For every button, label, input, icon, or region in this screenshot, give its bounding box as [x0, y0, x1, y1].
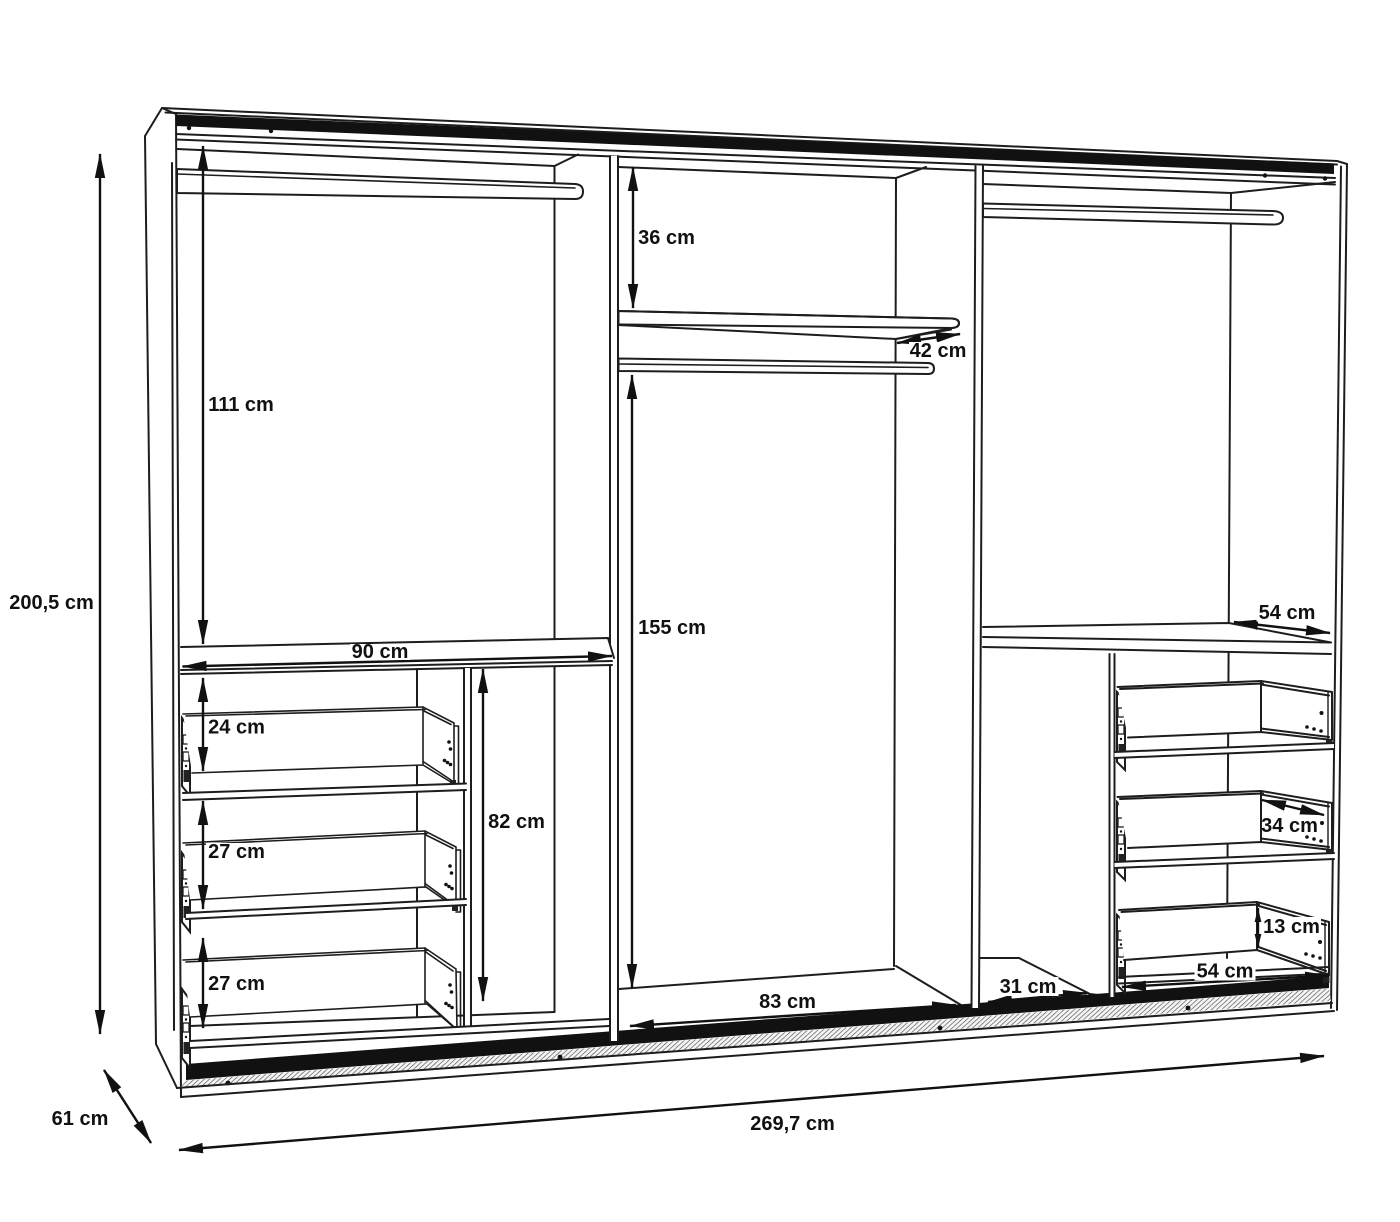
svg-text:200,5 cm: 200,5 cm	[9, 592, 94, 614]
svg-text:83 cm: 83 cm	[759, 991, 816, 1013]
svg-text:27 cm: 27 cm	[208, 973, 265, 995]
svg-text:111 cm: 111 cm	[208, 394, 274, 416]
svg-text:269,7 cm: 269,7 cm	[750, 1113, 835, 1135]
svg-text:27 cm: 27 cm	[208, 841, 265, 863]
svg-text:36 cm: 36 cm	[638, 227, 695, 249]
svg-text:54 cm: 54 cm	[1259, 602, 1316, 624]
svg-text:31 cm: 31 cm	[1000, 976, 1057, 998]
svg-text:42 cm: 42 cm	[910, 340, 967, 362]
svg-text:54 cm: 54 cm	[1197, 961, 1254, 983]
svg-text:155 cm: 155 cm	[638, 617, 706, 639]
svg-text:90 cm: 90 cm	[352, 641, 409, 663]
svg-text:13 cm: 13 cm	[1263, 916, 1320, 938]
svg-text:61 cm: 61 cm	[52, 1108, 109, 1130]
svg-text:24 cm: 24 cm	[208, 717, 265, 739]
svg-text:34 cm: 34 cm	[1261, 815, 1318, 837]
svg-text:82 cm: 82 cm	[488, 811, 545, 833]
